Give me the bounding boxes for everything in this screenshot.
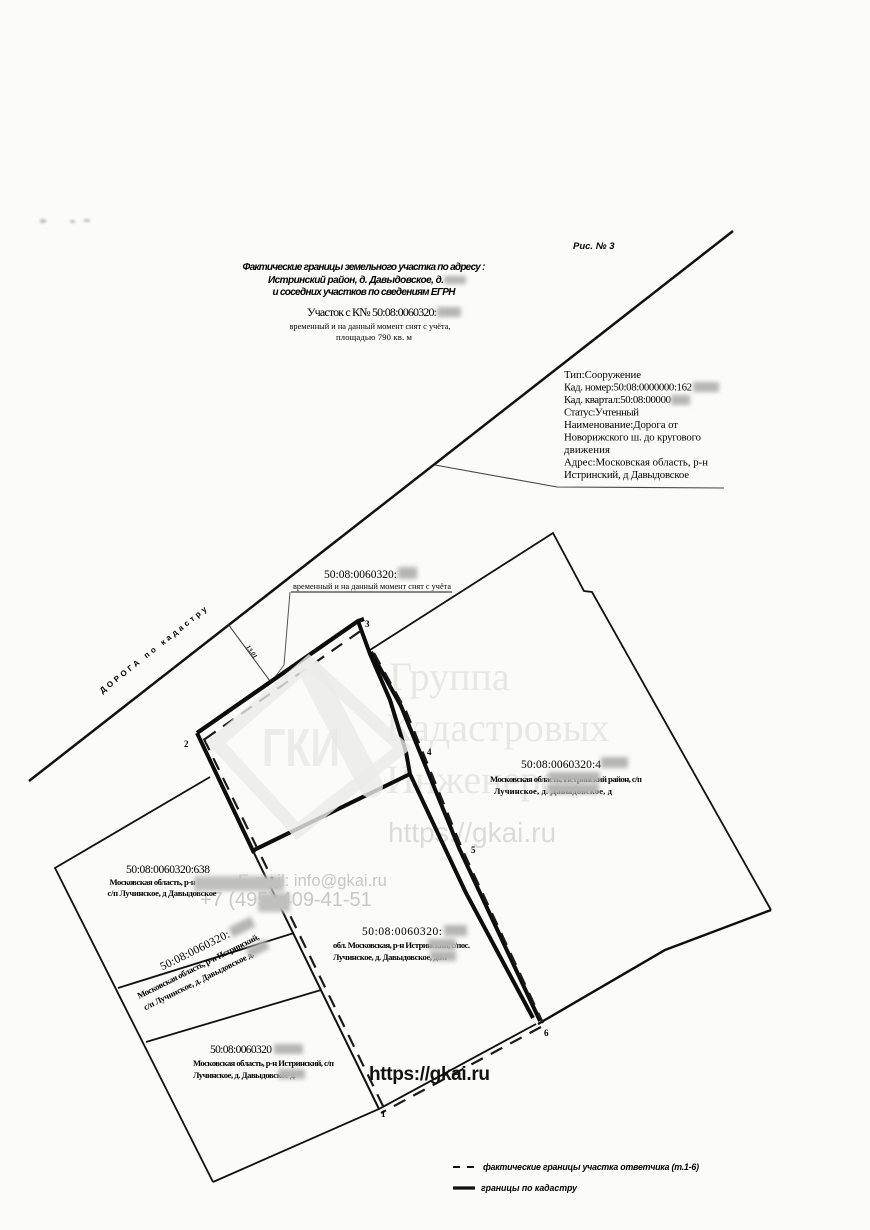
svg-text:ДОРОГА по кадастру: ДОРОГА по кадастру [98, 603, 211, 695]
svg-text:ГКИ: ГКИ [262, 718, 340, 778]
svg-text:площадью 790 кв. м: площадью 790 кв. м [336, 332, 413, 342]
svg-text:Кадастровых: Кадастровых [386, 705, 610, 750]
svg-text:50:08:0060320: 50:08:0060320 [210, 1044, 272, 1056]
svg-text:50:08:0060320:: 50:08:0060320: [362, 926, 442, 938]
svg-text:6: 6 [544, 1028, 549, 1038]
svg-text:Истринский, д Давыдовское: Истринский, д Давыдовское [564, 469, 689, 481]
svg-text:Наименование:Дорога от: Наименование:Дорога от [564, 419, 678, 431]
svg-text:2: 2 [184, 739, 189, 749]
svg-text:Новорижского ш. до кругового: Новорижского ш. до кругового [564, 432, 701, 444]
svg-text:5: 5 [471, 845, 476, 855]
svg-text:50:08:0060320:638: 50:08:0060320:638 [126, 864, 210, 876]
svg-text:Кад. номер:50:08:0000000:162: Кад. номер:50:08:0000000:162 [564, 382, 692, 394]
svg-text:временный и на данный момент с: временный и на данный момент снят с учёт… [290, 322, 451, 331]
svg-text:1: 1 [381, 1109, 386, 1119]
svg-text:границы по кадастру: границы по кадастру [481, 1183, 578, 1193]
svg-text:50:08:0060320:4: 50:08:0060320:4 [521, 759, 601, 771]
svg-text:временный и на данный момент с: временный и на данный момент снят с учёт… [293, 582, 451, 591]
svg-text:3: 3 [365, 619, 370, 629]
svg-text:13.01: 13.01 [244, 644, 258, 660]
svg-text:Участок с К№ 50:08:0060320:: Участок с К№ 50:08:0060320: [307, 305, 437, 319]
svg-text:Адрес:Московская область, р-н: Адрес:Московская область, р-н [564, 457, 708, 469]
svg-text:Тип:Сооружение: Тип:Сооружение [564, 369, 641, 381]
svg-text:фактические границы участка от: фактические границы участка ответчика (т… [483, 1162, 699, 1172]
svg-text:Московская область, р-н Истрин: Московская область, р-н Истринский, с/п [193, 1058, 334, 1068]
svg-text:и соседних участков по сведени: и соседних участков по сведениям ЕГРН [273, 287, 457, 298]
svg-text:Кад. квартал:50:08:00000: Кад. квартал:50:08:00000 [564, 394, 671, 406]
svg-text:Фактические границы земельного: Фактические границы земельного участка п… [243, 262, 486, 273]
svg-text:Статус:Учтенный: Статус:Учтенный [564, 407, 639, 419]
svg-text:50:08:0060320:: 50:08:0060320: [324, 569, 397, 581]
svg-text:Истринский район, д. Давыдовск: Истринский район, д. Давыдовское, д. [268, 275, 444, 286]
svg-text:https://gkai.ru: https://gkai.ru [388, 817, 556, 848]
svg-text:Рис. № 3: Рис. № 3 [573, 241, 615, 252]
svg-text:4: 4 [427, 747, 432, 757]
svg-text:Группа: Группа [389, 654, 510, 699]
svg-text:https://gkai.ru: https://gkai.ru [369, 1064, 490, 1085]
svg-text:движения: движения [564, 444, 610, 456]
